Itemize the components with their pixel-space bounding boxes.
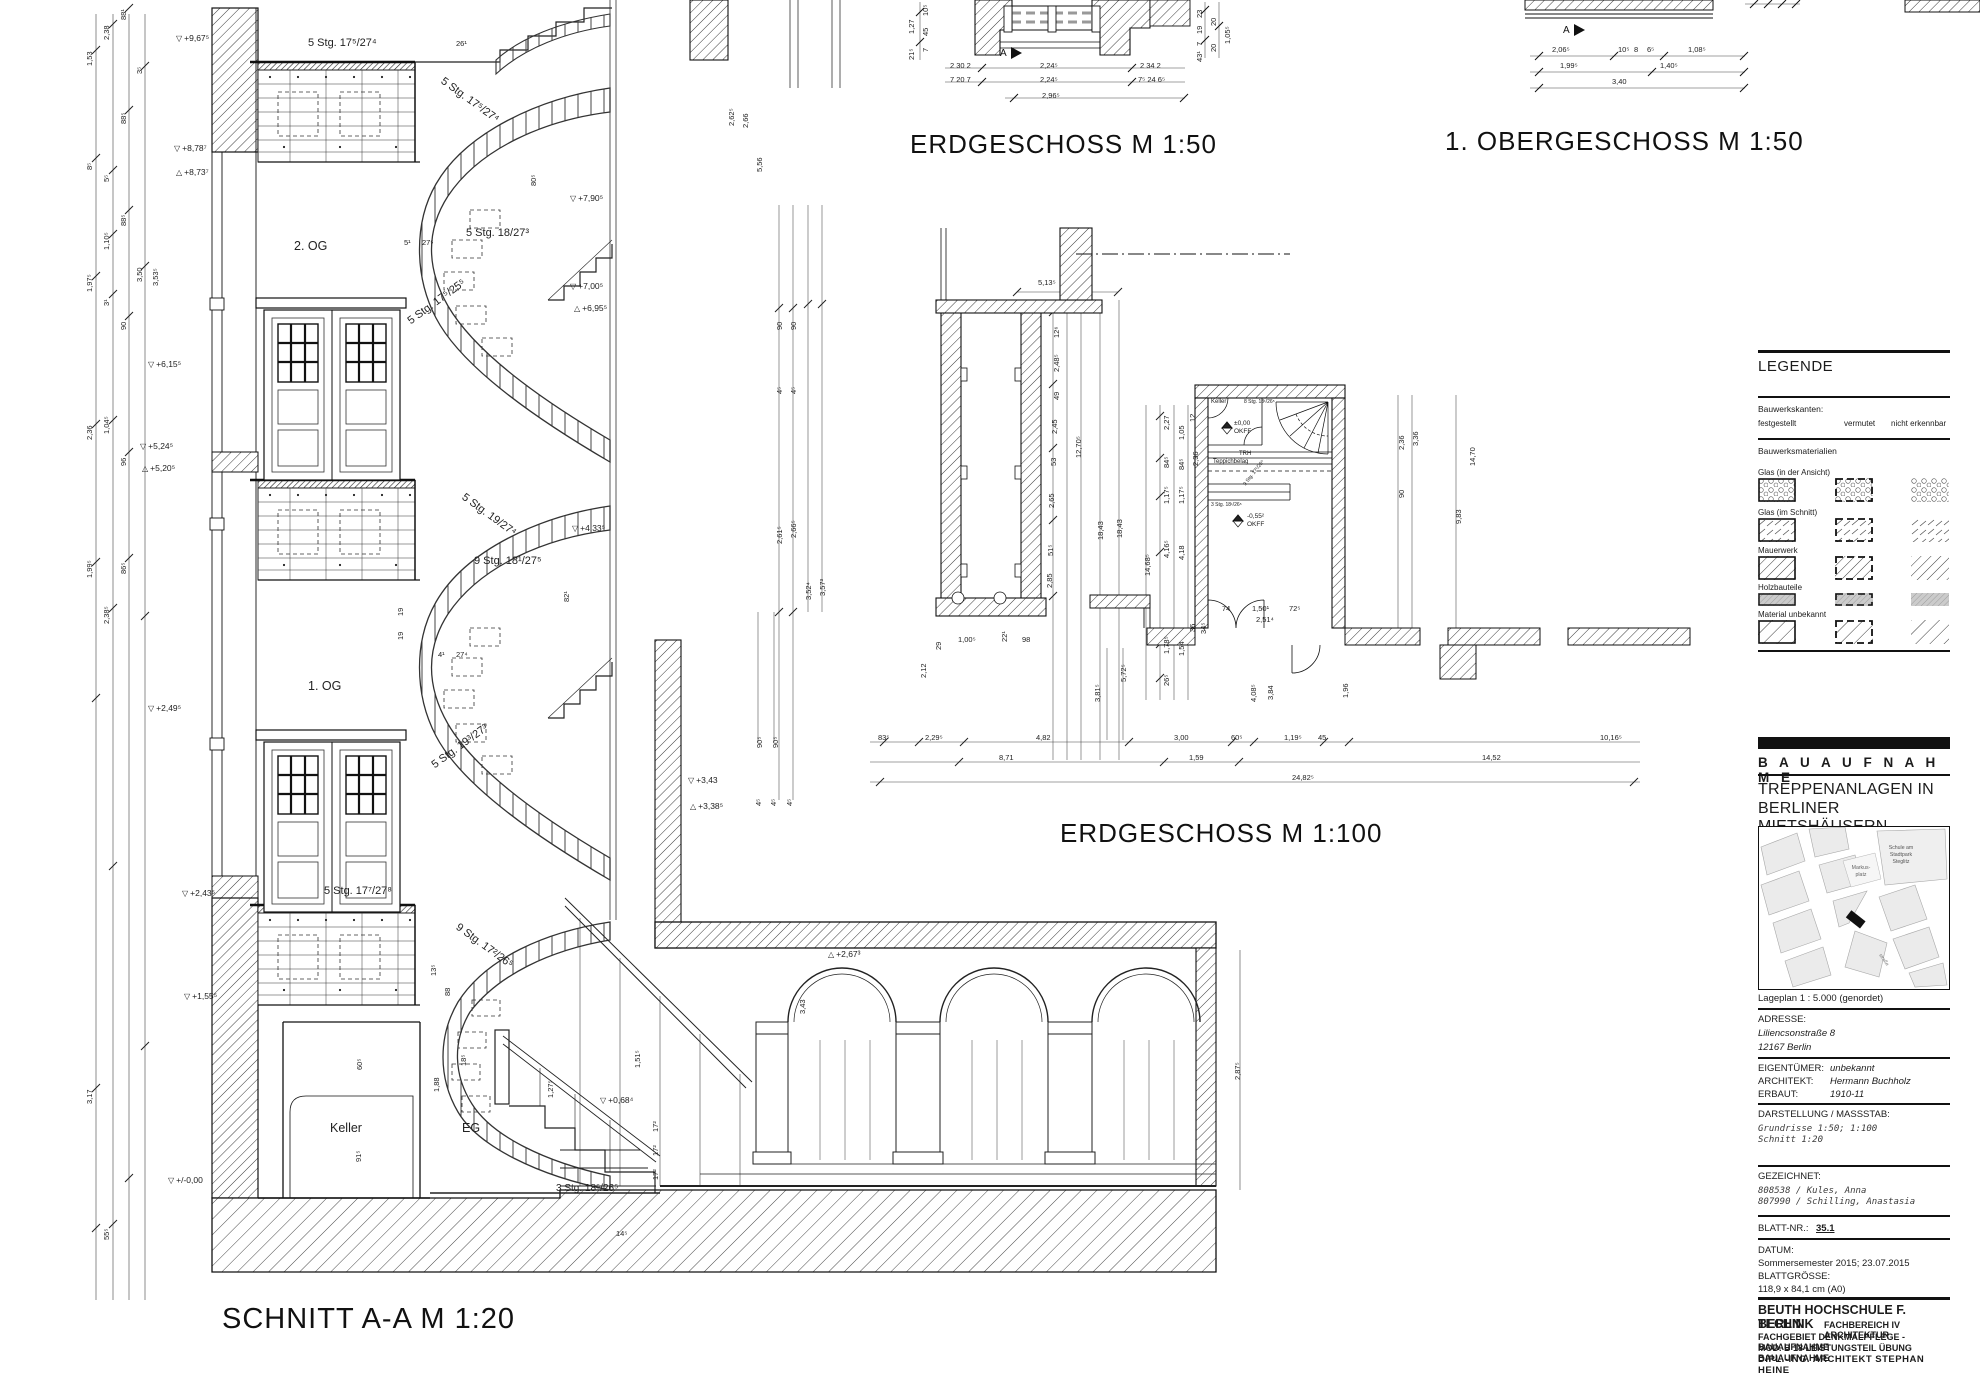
dim-label: 2,24⁵ [1040,76,1058,84]
floor-label: 1. OG [308,680,341,693]
level-triangle-icon: ▽ [688,776,694,785]
dim-label: 88⁵ [120,113,128,124]
divider [1758,1215,1950,1217]
title-block: B A U A U F N A H M E TREPPENANLAGEN IN … [1758,737,1950,1362]
elevation-value: +6,95⁵ [582,303,607,313]
dim-label: 60⁵ [1231,734,1242,742]
dim-label: 5,56 [756,157,764,172]
level-triangle-icon: △ [574,304,580,313]
dim-label: 5,13⁵ [1038,279,1056,287]
dim-label: 5⁵ [103,175,111,182]
elevation-value: +5,20⁵ [150,463,175,473]
dim-label: 88¹ [120,9,128,20]
dim-label: 2 30 2 [950,62,971,70]
stair-label: 8 Stg. 18¹/26⁵ [1244,400,1275,405]
dim-label: 3,00 [1174,734,1189,742]
map-label-school2: Stadtpark [1890,852,1913,858]
legend-kanten-label: Bauwerkskanten: [1758,404,1823,414]
elevation-marker: ▽+8,78⁷ [174,144,207,153]
level-triangle-icon: ▽ [174,144,180,153]
dim-label: 1,40⁵ [1660,62,1678,70]
section-arrow-icon [1011,47,1022,59]
dim-label: 14⁵ [616,1230,627,1238]
entrance-hall [560,640,1240,1190]
elevation-marker: △+5,20⁵ [142,464,175,473]
dim-label: 1,78⁵ [1163,636,1171,654]
map-label-platz: Markus- [1852,865,1871,871]
dim-label: 1,88 [433,1077,441,1092]
map-caption: Lageplan 1 : 5.000 (genordet) [1758,993,1883,1004]
level-label: OKFF [1247,522,1264,529]
elevation-value: +6,15⁵ [156,359,181,369]
elevation-value: +3,38⁵ [698,801,723,811]
dim-label: 4,16⁵ [1163,540,1171,558]
dim-label: 8⁵ [86,163,94,170]
dim-label: 20 [1210,18,1218,26]
dim-label: 2,06⁵ [1552,46,1570,54]
elevation-value: +2,49⁵ [156,703,181,713]
dim-label: 1,05 [1178,425,1186,440]
sheet-size-value: 118,9 x 84,1 cm (A0) [1758,1284,1845,1295]
dim-label: 24,82⁵ [1292,774,1314,782]
elevation-marker: ▽+2,49⁵ [148,704,181,713]
dim-label: 14,52 [1482,754,1501,762]
top-flight-rail [496,14,610,74]
corner-hatch [1905,0,1980,12]
school-city: BERLIN [1758,1317,1805,1331]
legend-materials-label: Bauwerksmaterialien [1758,446,1837,456]
dim-label: 12,70⁵ [1075,436,1083,458]
dim-label: 3⁵ [136,67,144,74]
section-marker-letter: A [1563,25,1570,36]
dim-label: 3,52⁴ [805,582,813,600]
dim-label: 3,50 [136,267,144,282]
dim-label: 1,08⁵ [1688,46,1706,54]
dim-label: 27⁵ [422,239,433,247]
elevation-marker: ▽+7,90⁵ [570,194,603,203]
level-triangle-icon: ▽ [182,889,188,898]
level-triangle-icon: ▽ [572,524,578,533]
dim-label: 90 [1398,490,1406,498]
legend-material-label: Mauerwerk [1758,546,1798,555]
scale-line1: Grundrisse 1:50; 1:100 [1758,1124,1877,1134]
map-label-school3: Steglitz [1892,859,1909,865]
elevation-marker: ▽+3,43 [688,776,718,785]
dim-label: 80⁵ [530,175,538,186]
dim-label: 19 [1196,26,1204,34]
sheet-number: 35.1 [1816,1223,1835,1234]
dim-label: 55⁵ [103,1229,111,1240]
floor-label: 2. OG [294,240,327,253]
dim-label: 17² [652,1169,660,1180]
drawing-title-eg100: ERDGESCHOSS M 1:100 [1060,820,1382,846]
stair-label: 3 Stg. 18¹/26⁵ [1211,503,1242,508]
dim-label: 1,50¹ [1252,605,1269,613]
dim-label: 2,85 [1046,573,1054,588]
dim-label: 5,72⁵ [1120,664,1128,682]
dim-label: 2,51⁴ [1256,616,1274,624]
dim-label: 90 [790,322,798,330]
elevation-marker: ▽+6,15⁵ [148,360,181,369]
sheet-number-label: BLATT-NR.: [1758,1223,1809,1234]
legend-material-label: Glas (in der Ansicht) [1758,468,1830,477]
floor-package [250,905,420,1005]
dim-label: 1,27⁵ [547,1080,555,1098]
divider [1758,1008,1950,1010]
dim-label: 5¹ [404,239,411,247]
landing-door-og2 [256,298,406,480]
exterior-wall [210,8,258,1198]
dim-label: 12 [1189,414,1197,422]
dim-label: 2,24⁵ [1040,62,1058,70]
dim-label: 88 [444,988,452,996]
drawing-title-eg50: ERDGESCHOSS M 1:50 [910,131,1217,157]
divider [1758,1238,1950,1240]
dim-label: 3,40 [1612,78,1627,86]
elevation-value: +4,33⁵ [580,523,605,533]
legend-kanten-item: festgestellt [1758,419,1796,428]
level-label: ±0,00 [1234,421,1250,428]
divider [1758,350,1950,353]
dim-label: 1,05⁵ [1224,26,1232,44]
section-marker-a: A [1000,47,1022,59]
dim-label: 17² [652,1145,660,1156]
room-label-keller: Keller [1211,399,1226,405]
legend-title: LEGENDE [1758,358,1833,375]
dim-label: 4¹ [438,651,445,659]
dim-label: 7 20 7 [950,76,971,84]
dim-label: 4⁵ [755,799,763,806]
dim-label: 10⁵ [1618,46,1629,54]
drawing-title-og50: 1. OBERGESCHOSS M 1:50 [1445,128,1804,154]
legend-kanten-item: nicht erkennbar [1891,419,1946,428]
dim-label: 3,36 [1412,431,1420,446]
drawn-by-1: 808538 / Kules, Anna [1758,1186,1866,1196]
level-triangle-icon: ▽ [176,34,182,43]
dim-label: 2,38⁵ [103,606,111,624]
dim-label: 27⁴ [456,651,468,659]
dim-label: 18,43 [1116,519,1124,538]
address-city: 12167 Berlin [1758,1042,1811,1053]
left-dimension-chains [92,4,149,1300]
sheet-size-label: BLATTGRÖSSE: [1758,1271,1830,1282]
scale-section-label: DARSTELLUNG / MASSSTAB: [1758,1109,1890,1120]
dim-label: 91⁵ [355,1151,363,1162]
dim-label: 10⁵ [922,5,930,16]
dim-label: 7 [922,48,930,52]
level-triangle-icon: △ [176,168,182,177]
title-block-bar [1758,737,1950,749]
owner-label: EIGENTÜMER: [1758,1063,1824,1074]
dim-label: 8 [1634,46,1638,54]
dim-label: 53 [1050,458,1058,466]
dim-label: 3,84 [1267,685,1275,700]
swatch-unbekannt-nicht-erkennbar [1911,620,1949,644]
dim-label: 19 [397,608,405,616]
dim-label: 2,96⁵ [1042,92,1060,100]
level-triangle-icon: △ [142,464,148,473]
dim-label: 90⁵ [756,737,764,748]
dim-label: 1,97⁵ [86,274,94,292]
dim-label: 60⁵ [356,1059,364,1070]
date-label: DATUM: [1758,1245,1794,1256]
school-supervisor: DIPL.-ING. ARCHITEKT STEPHAN HEINE [1758,1354,1950,1376]
dim-label: 74 [1222,605,1230,613]
dim-label: 2,12 [920,663,928,678]
legend: LEGENDE Bauwerkskanten: festgestellt ver… [1758,350,1950,660]
dim-label: 2,48⁵ [1053,354,1061,372]
dim-label: 2,36 [86,425,94,440]
dim-label: 20 [1210,44,1218,52]
dim-label: 1,53 [86,51,94,66]
divider [1758,1165,1950,1167]
dim-label: 1,51⁵ [634,1050,642,1068]
legend-material-label: Holzbauteile [1758,583,1802,592]
scale-line2: Schnitt 1:20 [1758,1135,1823,1145]
dim-label: 84⁵ [1178,459,1186,470]
dim-label: 13⁵ [430,965,438,976]
divider [1758,1057,1950,1059]
dim-label: 18,43 [1097,521,1105,540]
section-marker-letter: A [1000,48,1007,59]
floor-package [250,480,420,580]
elevation-marker: △+3,38⁵ [690,802,723,811]
divider [1758,438,1950,440]
dim-label: 4,08⁵ [1250,684,1258,702]
stair-flight-band [420,88,613,462]
divider [1758,650,1950,652]
dim-label: 14,70 [1469,447,1477,466]
dim-label: 1,99⁵ [86,560,94,578]
dim-label: 1,17⁵ [1178,486,1186,504]
stair-label: 5 Stg. 17⁷/27⁸ [324,886,392,897]
dim-label: 49 [1053,392,1061,400]
stair-label: 5 Stg. 17⁵/27⁴ [308,38,377,49]
level-label: -0,55² [1247,514,1264,521]
dim-label: 10,16⁵ [1600,734,1622,742]
dim-label: 3,17 [86,1089,94,1104]
dim-label: 4⁵ [776,387,784,394]
drawing-title-schnitt: SCHNITT A-A M 1:20 [222,1305,515,1334]
dim-label: 1,54 [1178,641,1186,656]
elevation-marker: ▽+5,24⁵ [140,442,173,451]
dim-label: 2,29⁵ [925,734,943,742]
dim-label: 14,68⁵ [1144,554,1152,576]
elevation-marker: ▽+2,43⁵ [182,889,215,898]
elevation-value: +1,55⁵ [192,991,217,1001]
dim-label: 4⁵ [790,387,798,394]
dim-label: 21⁵ [908,49,916,60]
stair-label: 3 Stg. 18⁵/26⁵ [556,1184,618,1194]
legend-kanten-item: vermutet [1844,419,1875,428]
drawn-by-2: 807990 / Schilling, Anastasia [1758,1197,1915,1207]
architect-label: ARCHITEKT: [1758,1076,1813,1087]
dim-label: 2,66 [742,113,750,128]
elevation-marker: △+6,95⁵ [574,304,607,313]
dim-label: 2,36 [1398,435,1406,450]
divider [1758,396,1950,398]
swatch-mauerwerk-nicht-erkennbar [1911,556,1949,580]
dim-label: 1,00⁵ [958,636,976,644]
elevation-marker: ▽+/-0,00 [168,1176,203,1185]
elevation-value: +0,68⁴ [608,1095,633,1105]
dim-label: 72⁵ [1289,605,1300,613]
dim-label: 45 [1318,734,1326,742]
elevation-marker: ▽+4,33⁵ [572,524,605,533]
dim-label: 17² [652,1121,660,1132]
swatch-holz-nicht-erkennbar [1911,593,1949,606]
floor-label: EG [462,1122,480,1135]
site-map: Schule am Stadtpark Steglitz Markus- pla… [1758,826,1950,990]
dim-label: 90 [776,322,784,330]
legend-material-label: Glas (im Schnitt) [1758,508,1817,517]
level-triangle-icon: △ [828,950,834,959]
section-drawing [92,0,1240,1300]
ground-hatch [212,1190,1216,1272]
dim-label: 34⁵ [1200,623,1208,634]
dim-label: 4,82 [1036,734,1051,742]
dim-label: 4,18 [1178,545,1186,560]
drawn-by-label: GEZEICHNET: [1758,1171,1821,1182]
built-value: 1910-11 [1830,1089,1864,1100]
level-triangle-icon: ▽ [570,282,576,291]
dim-label: 18⁵ [460,1055,468,1066]
dim-label: 82¹ [563,591,571,602]
built-label: ERBAUT: [1758,1089,1798,1100]
dim-label: 22¹ [1001,631,1009,642]
legend-material-label: Material unbekannt [1758,610,1826,619]
elevation-value: +2,67³ [836,949,860,959]
dim-label: 2,87⁵ [1234,1062,1242,1080]
section-marker-a: A [1563,24,1585,36]
dim-label: 43¹ [1196,51,1204,62]
keller-room [258,1022,430,1198]
dim-label: 1,27 [908,19,916,34]
plan-fragment-eg50 [690,0,1223,102]
elevation-marker: ▽+9,67⁵ [176,34,209,43]
level-triangle-icon: ▽ [148,360,154,369]
dim-label: 1,59 [1189,754,1204,762]
dim-label: 84⁵ [1163,457,1171,468]
dim-label: 12⁶ [1053,327,1061,338]
floor-label: Keller [330,1122,362,1135]
owner-value: unbekannt [1830,1063,1874,1074]
architect-value: Hermann Buchholz [1830,1076,1911,1087]
stair-label: 5 Stg. 18/27³ [466,228,529,239]
address-label: ADRESSE: [1758,1014,1806,1025]
level-triangle-icon: ▽ [140,442,146,451]
dim-label: 9,83 [1455,509,1463,524]
dim-label: 29 [935,642,943,650]
dim-label: 26¹ [456,40,467,48]
elevation-value: +9,67⁵ [184,33,209,43]
floor-package [250,62,420,162]
elevation-value: +8,73⁷ [184,167,209,177]
dim-label: 26⁵ [1163,675,1171,686]
level-triangle-icon: ▽ [184,992,190,1001]
dim-label: 19 [397,632,405,640]
level-triangle-icon: ▽ [600,1096,606,1105]
dim-label: 90 [120,322,128,330]
dim-label: 3,53⁵ [152,268,160,286]
elevation-marker: △+2,67³ [828,950,861,959]
level-triangle-icon: ▽ [148,704,154,713]
stair-label: 9 Stg. 18¹/27⁵ [474,556,542,567]
level-triangle-icon: △ [690,802,696,811]
address-street: Liliencsonstraße 8 [1758,1028,1835,1039]
drawing-canvas [0,0,1980,1400]
room-label-trh: TRH [1239,451,1251,457]
dim-label: 4⁵ [770,799,778,806]
swatch-glas-schnitt-nicht-erkennbar [1911,518,1949,542]
level-triangle-icon: ▽ [570,194,576,203]
dim-label: 98 [1022,636,1030,644]
dim-label: 1,10⁵ [103,232,111,250]
dim-label: 83⁵ [878,734,889,742]
date-value: Sommersemester 2015; 23.07.2015 [1758,1258,1910,1269]
dim-label: 1,99⁵ [1560,62,1578,70]
dim-label: 2,36 [1192,451,1200,466]
map-label-platz2: platz [1856,872,1867,878]
dim-label: 4⁵ [786,799,794,806]
room-label-teppichbelag: Teppichbelag [1213,459,1248,465]
elevation-value: +7,90⁵ [578,193,603,203]
dim-label: 23 [1196,10,1204,18]
elevation-marker: ▽+1,55⁵ [184,992,217,1001]
elevation-value: +/-0,00 [176,1175,203,1185]
dim-label: 96 [120,458,128,466]
dim-label: 51⁵ [1047,545,1055,556]
level-triangle-icon: ▽ [168,1176,174,1185]
dim-label: 6⁵ [1647,46,1654,54]
elevation-value: +2,43⁵ [190,888,215,898]
dim-label: 2,62⁵ [728,108,736,126]
project-title-line1: TREPPENANLAGEN IN [1758,781,1934,799]
elevation-marker: ▽+7,00⁵ [570,282,603,291]
dim-label: 1,04⁵ [103,416,111,434]
dim-label: 1,96 [1342,683,1350,698]
dim-label: 3,57³ [819,579,827,596]
dim-label: 2,61⁵ [776,526,784,544]
dim-label: 3¹ [103,299,111,306]
dim-label: 7⁵ 24 6⁵ [1138,76,1165,84]
dim-label: 90⁵ [772,737,780,748]
dim-label: 86⁵ [120,563,128,574]
winder-stair [1276,402,1328,454]
dim-label: 2,65 [1048,493,1056,508]
dim-label: 45 [922,28,930,36]
dim-label: 3,43 [799,999,807,1014]
dim-label: 2,38 [103,25,111,40]
drawing-sheet: ERDGESCHOSS M 1:50 1. OBERGESCHOSS M 1:5… [0,0,1980,1400]
map-label-school: Schule am [1889,845,1914,851]
elevation-value: +8,78⁷ [182,143,207,153]
elevation-marker: △+8,73⁷ [176,168,209,177]
dim-label: 8,71 [999,754,1014,762]
dim-label: 1,17⁵ [1163,486,1171,504]
divider [1758,774,1950,776]
level-label: OKFF [1234,429,1251,436]
dim-label: 2,45 [1051,419,1059,434]
elevation-value: +3,43 [696,775,718,785]
dim-label: 1,19⁵ [1284,734,1302,742]
dim-label: 36 [1189,624,1197,632]
elevation-value: +5,24⁵ [148,441,173,451]
plan-fragment-og50 [1525,0,1980,92]
dim-label: 7 [1196,42,1204,46]
swatch-glas-ansicht-nicht-erkennbar [1911,478,1949,502]
arcade-arches [660,968,1216,1186]
